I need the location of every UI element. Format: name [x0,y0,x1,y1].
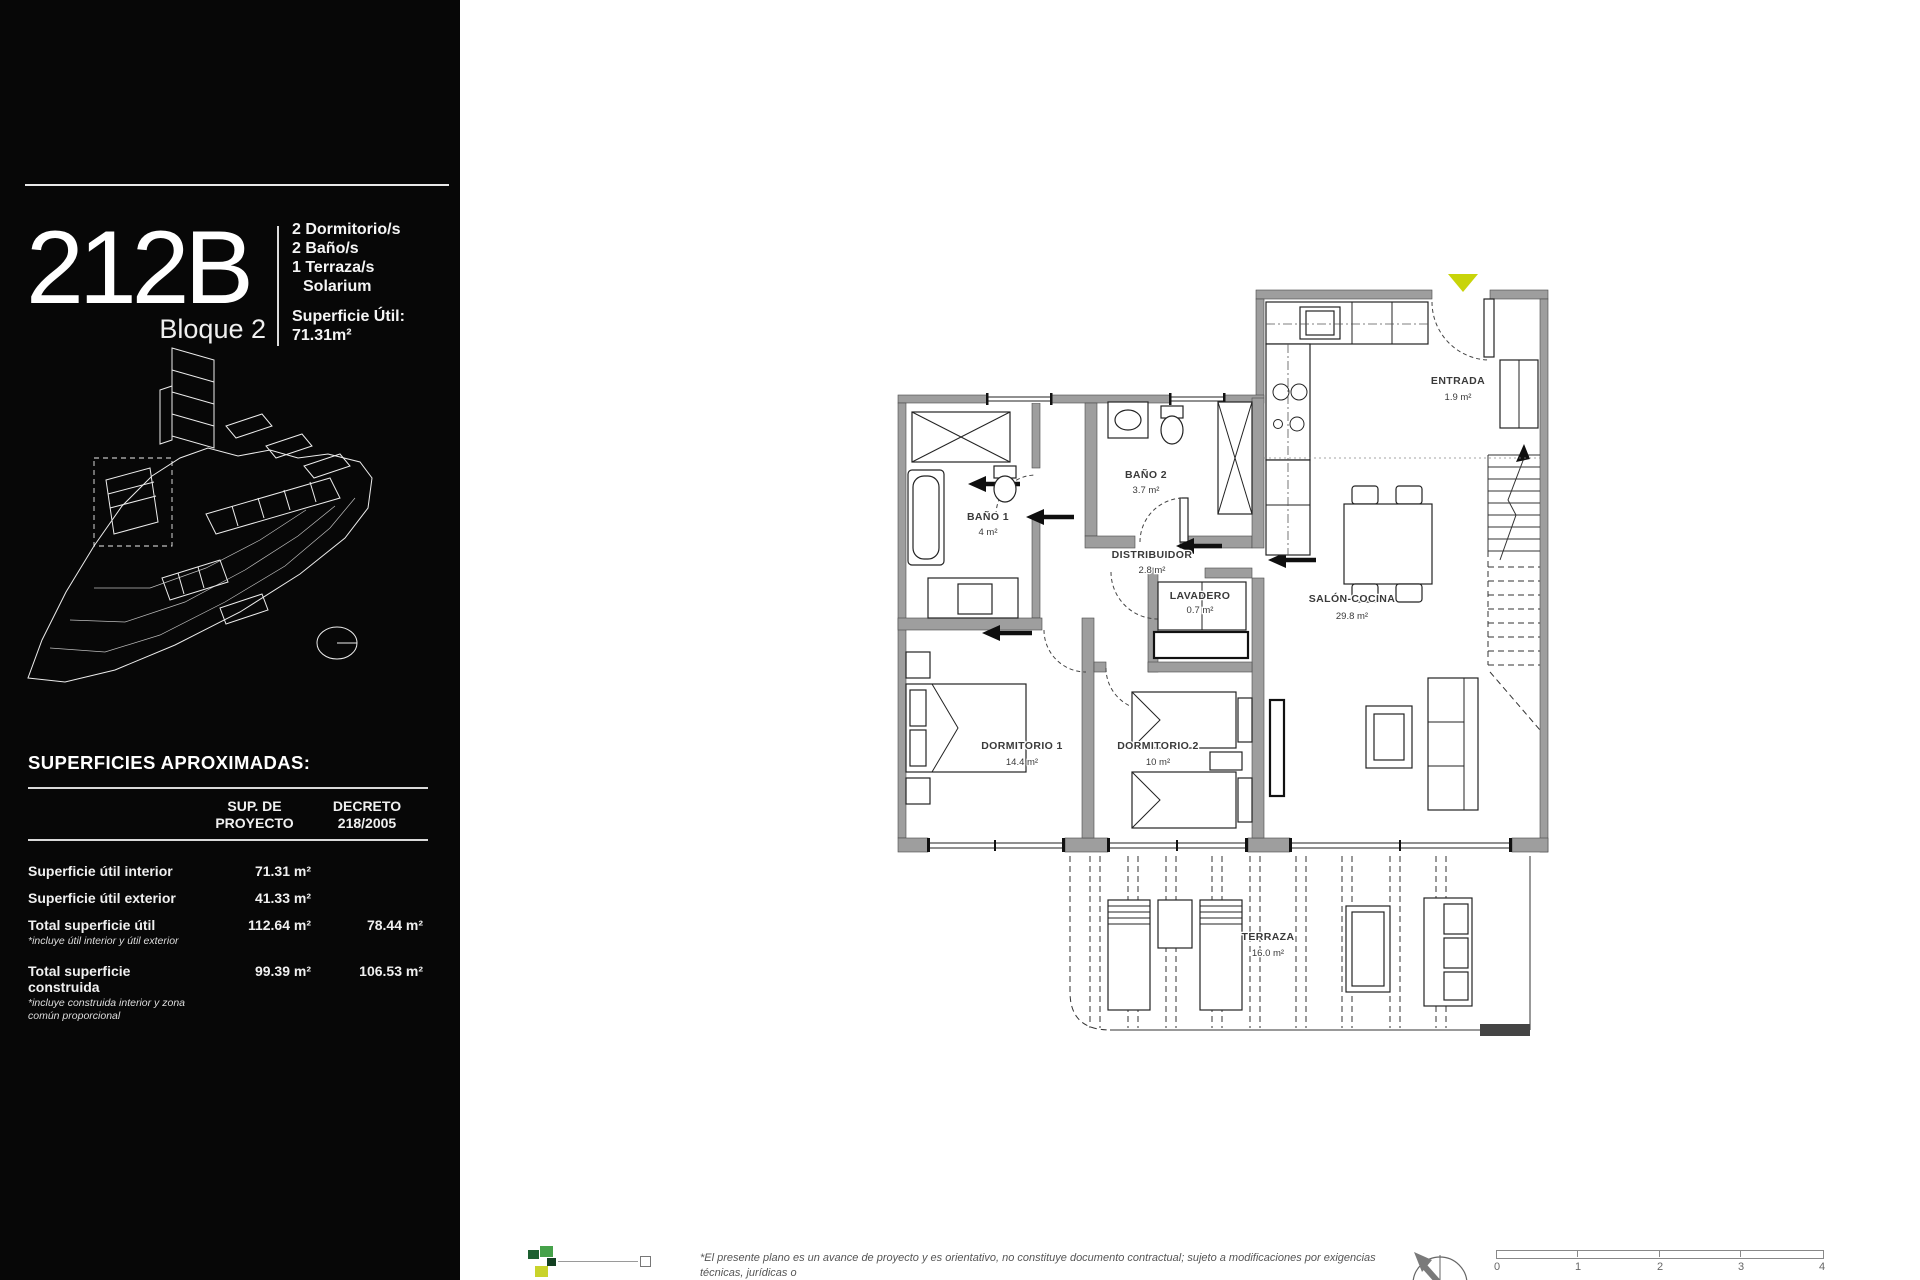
pillow [1238,698,1252,742]
svg-text:ENTRADA: ENTRADA [1431,375,1485,387]
svg-text:29.8 m²: 29.8 m² [1336,611,1368,622]
row-value-proyecto: 99.39 m² [198,963,311,979]
svg-text:14.4 m²: 14.4 m² [1006,757,1038,768]
table-row: Superficie útil exterior 41.33 m² [28,890,428,906]
svg-text:1.9 m²: 1.9 m² [1445,392,1472,403]
disclaimer-line: *El presente plano es un avance de proye… [700,1251,1420,1280]
pillow [910,690,926,726]
useful-surface-label: Superficie Útil: [292,307,405,326]
page: 212B 2 Dormitorio/s 2 Baño/s 1 Terraza/s… [0,0,1920,1280]
entrance-marker-icon [1448,274,1478,292]
table-row: Total superficie útil *incluye útil inte… [28,917,428,948]
nightstand [1210,752,1242,770]
header-rule [25,184,449,186]
chair [1352,486,1378,504]
window [1169,393,1226,405]
scale-number: 1 [1575,1261,1581,1273]
stairs [1488,444,1540,730]
chair [1396,584,1422,602]
svg-text:BAÑO 1: BAÑO 1 [967,510,1009,523]
row-note: común proporcional [28,1010,198,1023]
svg-text:BAÑO 2: BAÑO 2 [1125,468,1167,481]
unit-features: 2 Dormitorio/s 2 Baño/s 1 Terraza/s Sola… [292,220,400,296]
dining-table [1344,504,1432,584]
window [986,393,1053,405]
svg-text:LAVADERO: LAVADERO [1170,590,1231,602]
tv-unit [1270,700,1284,796]
pillow [910,730,926,766]
feature-terraces: 1 Terraza/s [292,258,400,277]
site-boundary [28,448,372,682]
room-label-distribuidor: DISTRIBUIDOR 2.8 m² [1112,549,1193,576]
row-label: Total superficie útil [28,917,198,933]
window [1289,838,1512,852]
sidebar: 212B 2 Dormitorio/s 2 Baño/s 1 Terraza/s… [0,0,460,1280]
room-label-terraza: TERRAZA 16.0 m² [1242,931,1295,959]
site-plan-wireframe [10,330,390,710]
row-label: Superficie útil exterior [28,890,198,906]
unit-code: 212B [26,216,249,320]
scale-number: 4 [1819,1261,1825,1273]
room-label-banyo1: BAÑO 1 4 m² [967,510,1009,538]
dining-set [1344,486,1432,602]
scale-bar-rule [1496,1250,1824,1259]
pillow [1238,778,1252,822]
scale-number: 2 [1657,1261,1663,1273]
title-divider [277,226,279,346]
col1-header: SUP. DE PROYECTO [198,798,311,831]
svg-text:3.7 m²: 3.7 m² [1133,485,1160,496]
svg-text:DORMITORIO 1: DORMITORIO 1 [981,740,1063,752]
legal-disclaimer: *El presente plano es un avance de proye… [700,1251,1420,1280]
svg-text:0.7 m²: 0.7 m² [1187,605,1214,616]
chair [1396,486,1422,504]
scale-number: 0 [1494,1261,1500,1273]
row-label: Superficie útil interior [28,863,198,879]
surfaces-title: SUPERFICIES APROXIMADAS: [28,752,428,774]
svg-text:16.0 m²: 16.0 m² [1252,948,1284,959]
row-value-decreto: 106.53 m² [311,963,423,979]
terrace-boundary-dashed [1070,856,1110,1030]
room-label-entrada: ENTRADA 1.9 m² [1431,375,1485,403]
svg-text:DORMITORIO 2: DORMITORIO 2 [1117,740,1199,752]
north-circle-icon [317,627,357,659]
row-note: *incluye útil interior y útil exterior [28,935,198,948]
row-value-proyecto: 41.33 m² [198,890,311,906]
window [927,838,1065,852]
entry-door-leaf [1484,299,1494,357]
hall-closet [1500,360,1538,428]
row-value-decreto: 78.44 m² [311,917,423,933]
bathroom2-fixtures [1108,402,1252,514]
table-rule-header [28,839,428,841]
bed [1132,772,1236,828]
room-label-salon: SALÓN-COCINA 29.8 m² [1309,592,1395,622]
table-header-row: SUP. DE PROYECTO DECRETO 218/2005 [28,798,428,831]
sofa [1428,678,1478,810]
bedroom1-furniture [906,652,1026,804]
laundry-counter [1154,632,1248,658]
table-rule-top [28,787,428,789]
feature-bedrooms: 2 Dormitorio/s [292,220,400,239]
room-label-banyo2: BAÑO 2 3.7 m² [1125,468,1167,496]
surfaces-table: SUPERFICIES APROXIMADAS: SUP. DE PROYECT… [28,752,428,1023]
bath2-door-leaf [1180,498,1188,542]
nightstand [906,778,930,804]
scale-number: 3 [1738,1261,1744,1273]
svg-text:SALÓN-COCINA: SALÓN-COCINA [1309,592,1395,605]
row-label: Total superficie construida [28,963,198,995]
side-table [1158,900,1192,948]
row-value-proyecto: 112.64 m² [198,917,311,933]
svg-text:4 m²: 4 m² [979,527,998,538]
nightstand [906,652,930,678]
window [1107,838,1248,852]
terrace-wall-stub [1480,1024,1530,1036]
compass-icon [1408,1244,1472,1280]
svg-text:10 m²: 10 m² [1146,757,1170,768]
table-row: Total superficie construida *incluye con… [28,963,428,1023]
terrace [1070,856,1530,1036]
developer-logo-icon [526,1246,656,1280]
feature-solarium: Solarium [292,277,400,296]
stair-direction-arrow [1500,458,1524,560]
table-row: Superficie útil interior 71.31 m² [28,863,428,879]
svg-text:TERRAZA: TERRAZA [1242,931,1295,943]
feature-bathrooms: 2 Baño/s [292,239,400,258]
sun-lounger [1108,900,1150,1010]
living-furniture [1270,678,1478,810]
svg-text:DISTRIBUIDOR: DISTRIBUIDOR [1112,549,1193,561]
sun-lounger [1200,900,1242,1010]
row-note: *incluye construida interior y zona [28,997,198,1010]
svg-text:2.8 m²: 2.8 m² [1139,565,1166,576]
floor-plan: ENTRADA 1.9 m² BAÑO 1 4 m² BAÑO 2 3.7 m²… [880,260,1570,1060]
room-label-dormitorio2: DORMITORIO 2 10 m² [1117,740,1199,768]
row-value-proyecto: 71.31 m² [198,863,311,879]
scale-bar: 0 1 2 3 4 [1496,1250,1824,1280]
col2-header: DECRETO 218/2005 [311,798,423,831]
